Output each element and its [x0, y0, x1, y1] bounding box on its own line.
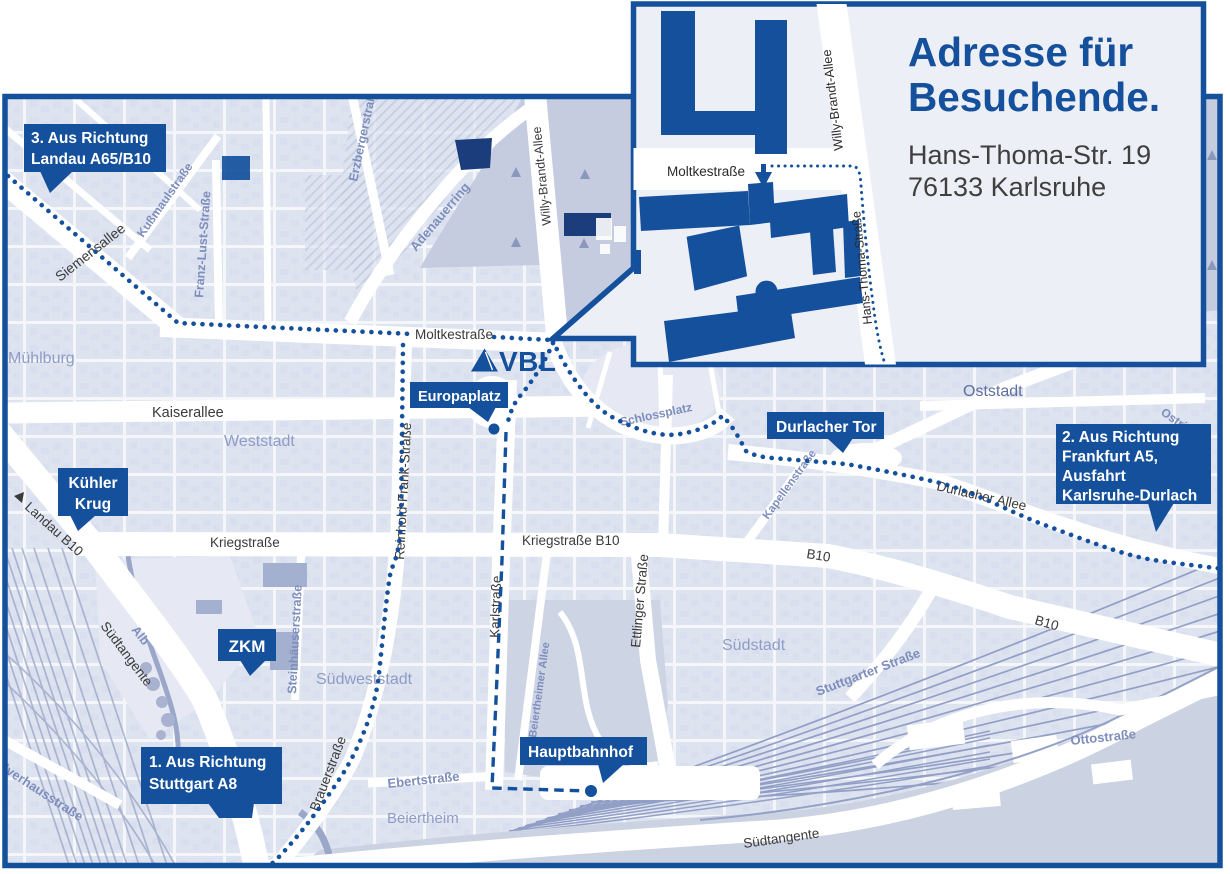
svg-text:Besuchende.: Besuchende. [908, 74, 1160, 120]
svg-text:Adresse für: Adresse für [908, 29, 1133, 75]
svg-text:2. Aus Richtung: 2. Aus Richtung [1062, 429, 1179, 446]
svg-text:Europaplatz: Europaplatz [418, 389, 501, 405]
svg-text:76133 Karlsruhe: 76133 Karlsruhe [908, 172, 1106, 202]
svg-text:Beiertheim: Beiertheim [387, 810, 459, 827]
svg-text:Oststadt: Oststadt [963, 383, 1023, 400]
svg-text:Weststadt: Weststadt [224, 433, 295, 450]
svg-text:Durlacher Tor: Durlacher Tor [776, 419, 877, 436]
svg-text:1. Aus Richtung: 1. Aus Richtung [149, 754, 266, 771]
svg-text:Mühlburg: Mühlburg [8, 350, 75, 367]
svg-text:Südstadt: Südstadt [722, 637, 786, 654]
svg-text:Karlsruhe-Durlach: Karlsruhe-Durlach [1062, 488, 1197, 505]
svg-text:Kaiserallee: Kaiserallee [152, 405, 224, 421]
svg-text:Krug: Krug [75, 496, 111, 513]
svg-text:Moltkestraße: Moltkestraße [415, 327, 493, 342]
svg-text:Kriegstraße: Kriegstraße [210, 535, 280, 550]
svg-text:3. Aus Richtung: 3. Aus Richtung [31, 130, 148, 147]
svg-text:Frankfurt A5,: Frankfurt A5, [1062, 449, 1158, 466]
svg-text:Kriegstraße B10: Kriegstraße B10 [522, 533, 620, 548]
svg-text:Landau A65/B10: Landau A65/B10 [31, 151, 151, 168]
svg-text:Kühler: Kühler [68, 475, 117, 492]
svg-text:Moltkestraße: Moltkestraße [667, 164, 745, 179]
svg-text:ZKM: ZKM [229, 637, 266, 656]
svg-text:Ausfahrt: Ausfahrt [1062, 468, 1126, 485]
svg-text:Südweststadt: Südweststadt [316, 671, 413, 688]
svg-text:Hans-Thoma-Str. 19: Hans-Thoma-Str. 19 [908, 140, 1151, 170]
svg-text:Hauptbahnhof: Hauptbahnhof [528, 744, 634, 761]
svg-text:VBL: VBL [499, 346, 556, 377]
svg-text:Stuttgart A8: Stuttgart A8 [149, 776, 237, 793]
